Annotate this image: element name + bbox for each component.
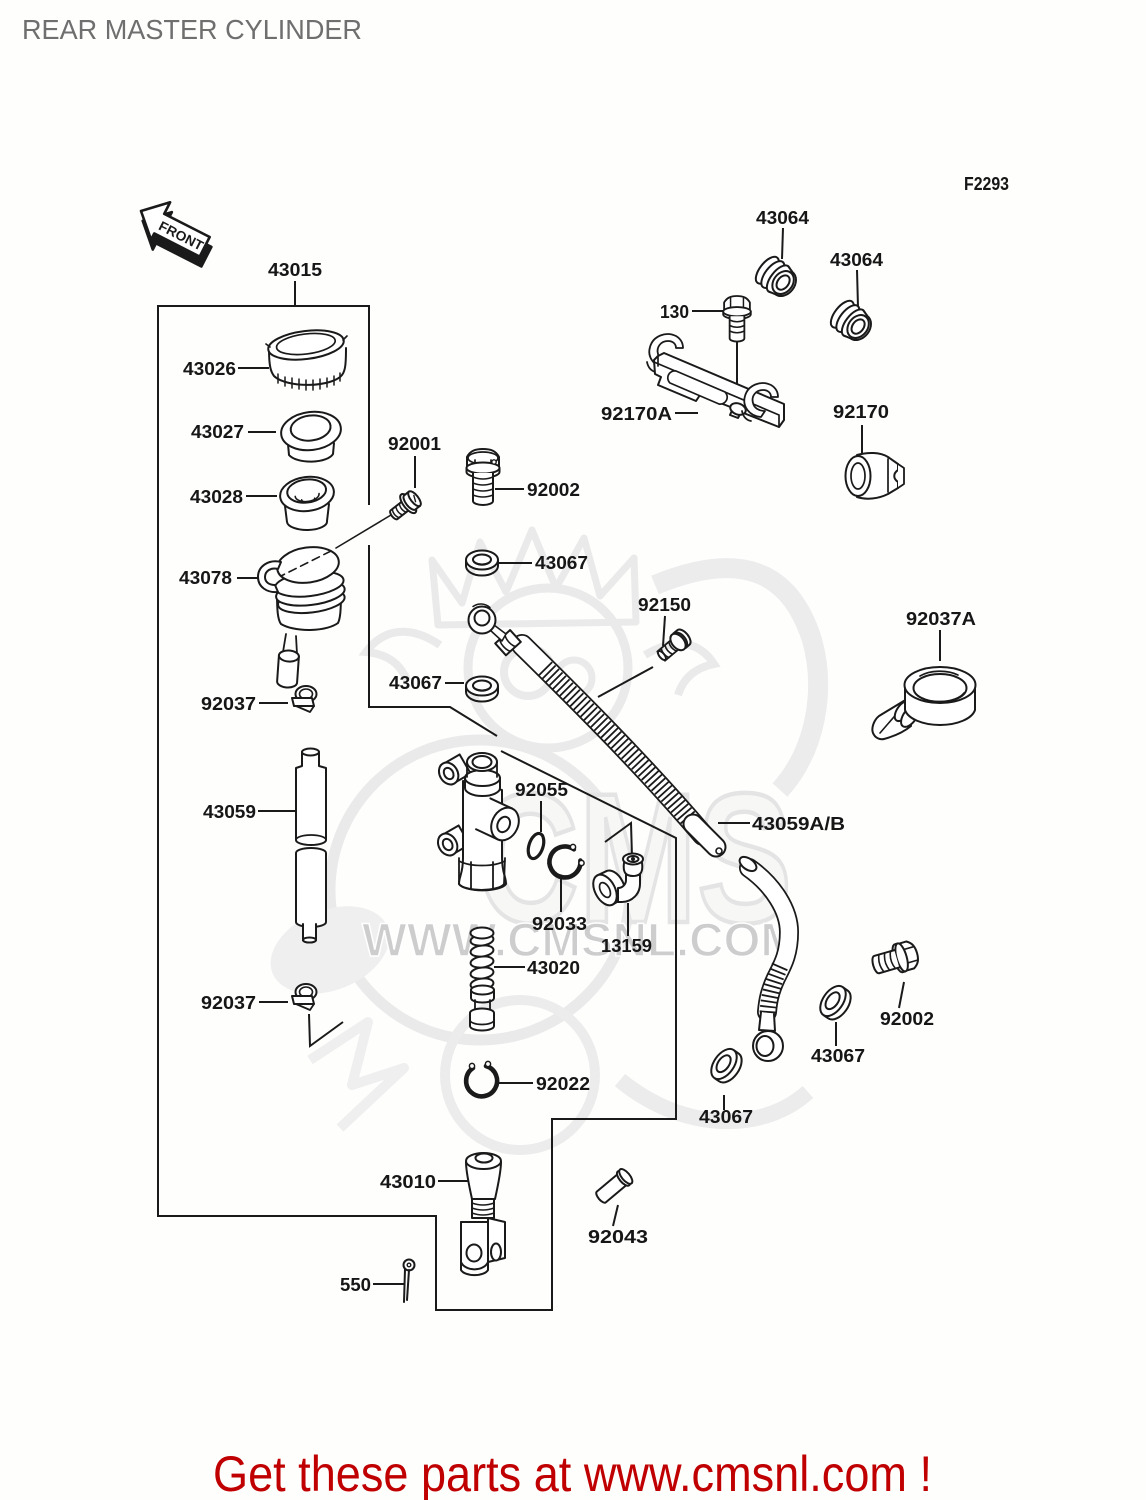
svg-text:43027: 43027 xyxy=(191,422,244,442)
svg-text:92002: 92002 xyxy=(527,480,580,500)
svg-text:92002: 92002 xyxy=(880,1009,934,1029)
svg-text:92037: 92037 xyxy=(201,694,256,714)
svg-text:43059: 43059 xyxy=(203,802,256,822)
svg-text:43059A/B: 43059A/B xyxy=(752,814,845,834)
svg-text:92043: 92043 xyxy=(588,1227,648,1247)
svg-text:92055: 92055 xyxy=(515,780,568,800)
svg-text:43067: 43067 xyxy=(389,673,442,693)
svg-text:F2293: F2293 xyxy=(964,174,1009,194)
svg-text:43010: 43010 xyxy=(380,1172,436,1192)
svg-text:92037: 92037 xyxy=(201,993,256,1013)
svg-text:43026: 43026 xyxy=(183,359,236,379)
svg-text:Get these parts at www.cmsnl.c: Get these parts at www.cmsnl.com ! xyxy=(213,1446,932,1500)
svg-text:550: 550 xyxy=(340,1275,371,1295)
svg-text:43067: 43067 xyxy=(699,1107,753,1127)
svg-text:92033: 92033 xyxy=(532,914,587,934)
svg-text:REAR MASTER CYLINDER: REAR MASTER CYLINDER xyxy=(22,14,362,45)
svg-text:43020: 43020 xyxy=(527,958,580,978)
svg-text:43028: 43028 xyxy=(190,487,243,507)
svg-text:43015: 43015 xyxy=(268,260,322,280)
svg-text:92037A: 92037A xyxy=(906,609,976,629)
svg-text:43064: 43064 xyxy=(830,250,883,270)
svg-text:43067: 43067 xyxy=(811,1046,865,1066)
svg-text:92170: 92170 xyxy=(833,402,889,422)
svg-text:92022: 92022 xyxy=(536,1074,590,1094)
svg-text:43067: 43067 xyxy=(535,553,588,573)
svg-text:13159: 13159 xyxy=(601,936,652,956)
svg-text:43064: 43064 xyxy=(756,208,809,228)
svg-text:130: 130 xyxy=(660,302,689,322)
svg-text:92150: 92150 xyxy=(638,595,691,615)
svg-text:92001: 92001 xyxy=(388,434,441,454)
svg-text:43078: 43078 xyxy=(179,568,232,588)
svg-text:92170A: 92170A xyxy=(601,404,672,424)
